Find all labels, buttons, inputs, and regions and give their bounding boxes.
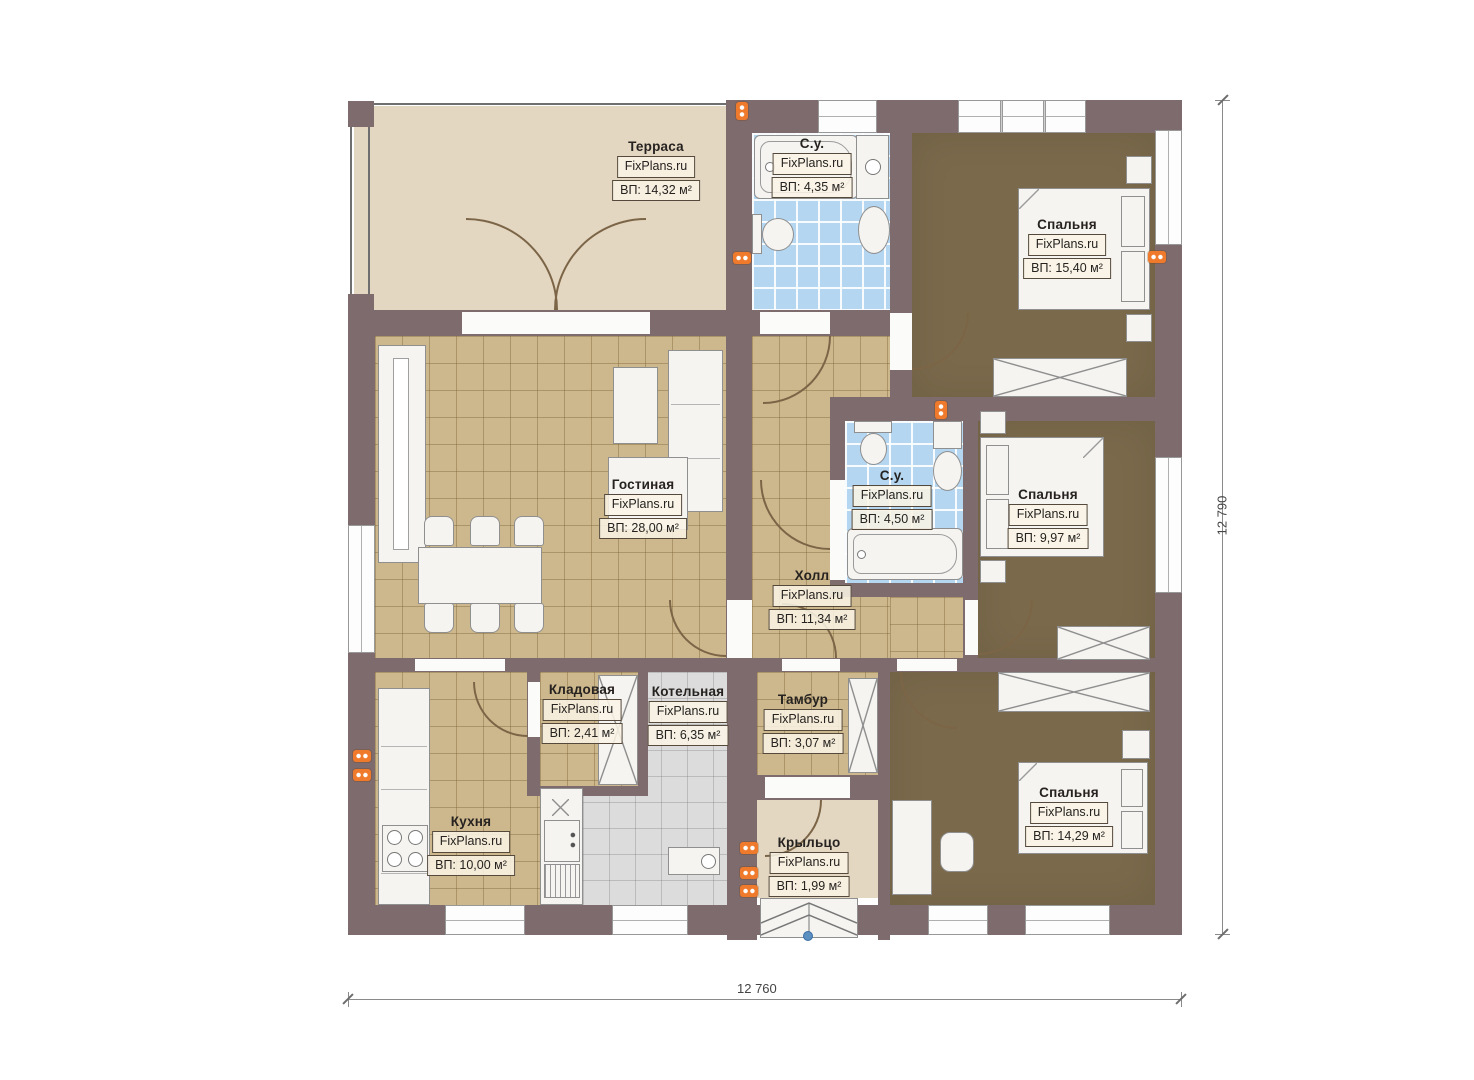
kitchen-counter-left	[378, 688, 430, 905]
room-label-vestibule: Тамбур FixPlans.ru ВП: 3,07 м²	[763, 692, 844, 754]
room-title: Кухня	[451, 814, 491, 829]
terrace-edge-top	[350, 103, 728, 105]
burner	[387, 852, 402, 867]
wardrobe-bedroom-3	[998, 672, 1150, 712]
opening-storage	[528, 682, 540, 737]
room-title: Спальня	[1039, 785, 1099, 800]
nightstand	[980, 411, 1006, 434]
outlet-icon	[935, 401, 947, 419]
room-title: Тамбур	[778, 692, 828, 707]
room-area: ВП: 3,07 м²	[763, 733, 844, 755]
window-mullion	[1043, 101, 1046, 132]
watermark: FixPlans.ru	[764, 709, 843, 731]
counter-divider	[381, 789, 427, 790]
bathtub-2-inner	[853, 534, 957, 574]
burner	[408, 830, 423, 845]
burner	[387, 830, 402, 845]
dining-chair	[470, 516, 500, 546]
window-living-west	[348, 525, 375, 653]
window-bathroom1-north	[818, 100, 877, 133]
dimension-right-value: 12 790	[1215, 477, 1230, 555]
opening-bedroom3	[897, 659, 957, 671]
room-title: Кладовая	[549, 682, 615, 697]
burner	[408, 852, 423, 867]
bed-1-pillow	[1121, 251, 1145, 302]
room-label-bathroom-2: С.у. FixPlans.ru ВП: 4,50 м²	[852, 468, 933, 530]
dining-table	[418, 547, 542, 604]
wall-bathroom1-bedroom1	[890, 100, 912, 420]
terrace-column-top	[348, 101, 374, 127]
watermark: FixPlans.ru	[1009, 504, 1088, 526]
room-label-bedroom-2: Спальня FixPlans.ru ВП: 9,97 м²	[1008, 487, 1089, 549]
kitchen-sink	[544, 820, 580, 862]
dining-chair	[514, 603, 544, 633]
room-title: Холл	[795, 568, 830, 583]
window-kitchen-south	[445, 905, 525, 935]
room-title: С.у.	[880, 468, 904, 483]
room-label-storage: Кладовая FixPlans.ru ВП: 2,41 м²	[542, 682, 623, 744]
dimension-bottom-value: 12 760	[733, 981, 781, 996]
room-area: ВП: 2,41 м²	[542, 723, 623, 745]
opening-bedroom1	[890, 313, 912, 370]
opening-vestibule-hall	[782, 659, 840, 671]
window-bedroom2-east	[1155, 457, 1182, 593]
opening-living-hall	[727, 600, 752, 658]
room-label-kitchen: Кухня FixPlans.ru ВП: 10,00 м²	[427, 814, 515, 876]
watermark: FixPlans.ru	[770, 852, 849, 874]
nightstand	[1122, 730, 1150, 759]
bed-2-fold	[1083, 438, 1103, 458]
watermark: FixPlans.ru	[773, 153, 852, 175]
bed-3-pillow	[1121, 811, 1143, 849]
room-title: Гостиная	[612, 477, 675, 492]
counter-divider	[381, 873, 427, 874]
bed-2-pillow	[986, 445, 1009, 495]
bed-3-pillow	[1121, 769, 1143, 807]
outlet-icon	[733, 252, 751, 264]
bed-1-fold	[1019, 189, 1039, 209]
window-bedroom1-east	[1155, 130, 1182, 245]
outlet-icon	[740, 842, 758, 854]
washing-machine-1	[856, 135, 889, 199]
room-area: ВП: 10,00 м²	[427, 855, 515, 877]
room-area: ВП: 15,40 м²	[1023, 258, 1111, 280]
watermark: FixPlans.ru	[1028, 234, 1107, 256]
washing-machine-2	[933, 421, 962, 449]
bed-1-pillow	[1121, 196, 1145, 247]
desk-chair	[940, 832, 974, 872]
room-area: ВП: 11,34 м²	[769, 609, 856, 631]
room-area: ВП: 28,00 м²	[599, 518, 687, 540]
vestibule-wardrobe	[848, 678, 878, 773]
room-label-bedroom-3: Спальня FixPlans.ru ВП: 14,29 м²	[1025, 785, 1113, 847]
wall-storage-boiler	[638, 658, 648, 792]
room-area: ВП: 4,35 м²	[772, 177, 853, 199]
room-label-porch: Крыльцо FixPlans.ru ВП: 1,99 м²	[769, 835, 850, 897]
opening-front-door	[765, 777, 850, 798]
opening-bedroom2	[965, 600, 978, 655]
room-label-bedroom-1: Спальня FixPlans.ru ВП: 15,40 м²	[1023, 217, 1111, 279]
room-title: Спальня	[1018, 487, 1078, 502]
room-title: Крыльцо	[778, 835, 841, 850]
wall-porch-bedroom3	[878, 658, 890, 940]
counter-divider	[381, 746, 427, 747]
room-label-terrace: Терраса FixPlans.ru ВП: 14,32 м²	[612, 139, 700, 201]
watermark: FixPlans.ru	[649, 701, 728, 723]
room-title: Спальня	[1037, 217, 1097, 232]
room-area: ВП: 14,32 м²	[612, 180, 700, 202]
boiler-unit	[668, 847, 720, 875]
sink-1	[858, 206, 890, 254]
watermark: FixPlans.ru	[853, 485, 932, 507]
boiler-dial	[701, 854, 716, 869]
nightstand	[1126, 314, 1152, 342]
window-boiler-south	[612, 905, 688, 935]
room-area: ВП: 14,29 м²	[1025, 826, 1113, 848]
outlet-icon	[740, 885, 758, 897]
bed-3-fold	[1019, 763, 1037, 781]
room-label-hall: Холл FixPlans.ru ВП: 11,34 м²	[769, 568, 856, 630]
toilet-2-bowl	[860, 433, 887, 465]
opening-bathroom2	[830, 480, 845, 580]
opening-bathroom1	[760, 312, 830, 334]
wardrobe-bedroom-1	[993, 358, 1127, 397]
wardrobe-bedroom-2	[1057, 626, 1150, 660]
room-title: Котельная	[652, 684, 724, 699]
outlet-icon	[353, 750, 371, 762]
tv-unit	[378, 345, 426, 563]
bathtub-2	[847, 528, 963, 580]
watermark: FixPlans.ru	[1030, 802, 1109, 824]
room-area: ВП: 4,50 м²	[852, 509, 933, 531]
window-bedroom1-north	[958, 100, 1086, 133]
tv-unit-inner	[393, 358, 409, 550]
dimension-line-bottom	[348, 999, 1182, 1000]
desk	[892, 800, 932, 895]
nightstand	[980, 560, 1006, 583]
floor-plan: Терраса FixPlans.ru ВП: 14,32 м² С.у. Fi…	[0, 0, 1474, 1080]
watermark: FixPlans.ru	[604, 494, 683, 516]
dining-chair	[424, 516, 454, 546]
outlet-icon	[1148, 251, 1166, 263]
dishwasher	[544, 864, 580, 898]
wall-living-hall	[726, 100, 752, 672]
room-title: С.у.	[800, 136, 824, 151]
nightstand	[1126, 156, 1152, 184]
room-title: Терраса	[628, 139, 684, 154]
sofa-cushion-line	[671, 404, 720, 405]
wall-north	[726, 100, 1182, 133]
armchair	[613, 367, 658, 444]
watermark: FixPlans.ru	[773, 585, 852, 607]
opening-kitchen	[415, 659, 505, 671]
entry-marker	[803, 931, 813, 941]
toilet-2-tank	[854, 421, 892, 433]
dining-chair	[470, 603, 500, 633]
toilet-1-bowl	[762, 218, 794, 251]
outlet-icon	[736, 102, 748, 120]
window-bedroom3-south-1	[928, 905, 988, 935]
wall-bathroom2-east	[963, 397, 978, 597]
wall-boiler-vestibule	[727, 658, 757, 940]
window-mullion	[1000, 101, 1003, 132]
room-area: ВП: 6,35 м²	[648, 725, 729, 747]
dining-chair	[424, 603, 454, 633]
opening-terrace-doors	[462, 312, 650, 334]
room-label-living-room: Гостиная FixPlans.ru ВП: 28,00 м²	[599, 477, 687, 539]
bed-2-pillow	[986, 499, 1009, 549]
watermark: FixPlans.ru	[432, 831, 511, 853]
dining-chair	[514, 516, 544, 546]
watermark: FixPlans.ru	[543, 699, 622, 721]
hob-icon	[552, 799, 569, 816]
room-area: ВП: 9,97 м²	[1008, 528, 1089, 550]
terrace-edge-left	[350, 103, 352, 311]
room-label-bathroom-1: С.у. FixPlans.ru ВП: 4,35 м²	[772, 136, 853, 198]
toilet-1-tank	[752, 214, 762, 254]
terrace-edge-left-2	[368, 103, 370, 311]
room-label-boiler-room: Котельная FixPlans.ru ВП: 6,35 м²	[648, 684, 729, 746]
washing-machine-door	[865, 159, 881, 175]
sink-2	[933, 451, 962, 491]
room-area: ВП: 1,99 м²	[769, 876, 850, 898]
bathtub-2-drain	[857, 550, 866, 559]
outlet-icon	[353, 769, 371, 781]
watermark: FixPlans.ru	[617, 156, 696, 178]
stove	[382, 825, 428, 872]
window-bedroom3-south-2	[1025, 905, 1110, 935]
outlet-icon	[740, 867, 758, 879]
